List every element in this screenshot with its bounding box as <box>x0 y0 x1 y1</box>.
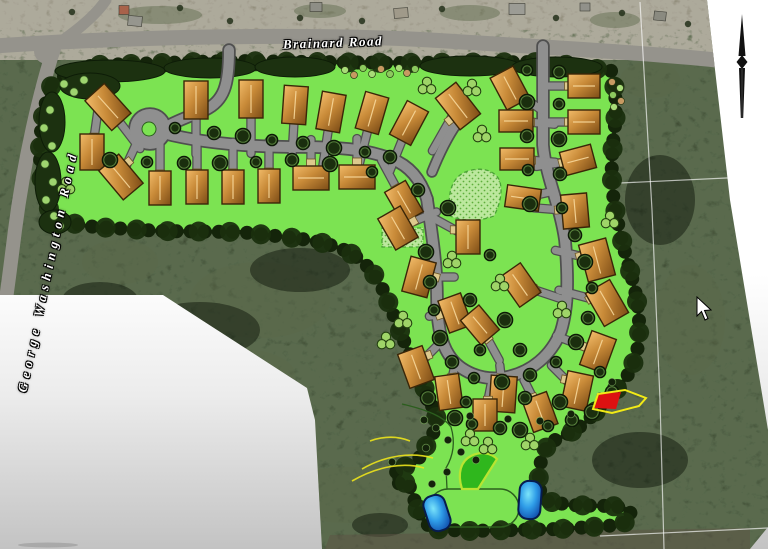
evergreen-tree <box>444 436 452 444</box>
house <box>565 74 601 98</box>
street-tree <box>497 312 513 328</box>
evergreen-tree <box>466 412 474 420</box>
house <box>282 85 309 125</box>
street-tree <box>447 410 463 426</box>
evergreen-tree <box>420 416 428 424</box>
house <box>435 373 463 411</box>
evergreen-tree <box>472 456 480 464</box>
evergreen-tree <box>443 468 451 476</box>
site-plan-viewer: Brainard Road George Washington Road <box>0 0 768 549</box>
street-tree <box>519 94 535 110</box>
shrub <box>351 72 358 79</box>
street-tree <box>577 254 593 270</box>
house <box>239 80 263 118</box>
house <box>80 133 104 170</box>
faint-watermark <box>18 543 78 548</box>
neighboring-building <box>119 6 129 15</box>
shrub-cluster <box>403 319 412 328</box>
shrub-cluster <box>473 133 482 142</box>
cul-de-sac-island <box>142 122 156 136</box>
shrub-cluster <box>452 259 461 268</box>
neighboring-building <box>128 15 143 26</box>
shrub <box>609 79 616 86</box>
shrub-cluster <box>418 85 427 94</box>
street-tree <box>522 196 538 212</box>
shrub <box>412 66 419 73</box>
shrub-cluster <box>491 282 500 291</box>
evergreen-tree <box>536 417 544 425</box>
neighboring-building <box>310 3 322 12</box>
evergreen-tree <box>388 458 396 466</box>
shrub-cluster <box>500 282 509 291</box>
street-tree <box>440 200 456 216</box>
shrub-cluster <box>482 133 491 142</box>
shrub-cluster <box>427 85 436 94</box>
shrub <box>610 92 617 99</box>
shrub-cluster <box>443 259 452 268</box>
house <box>149 170 171 205</box>
shrub-cluster <box>479 445 488 454</box>
street-tree <box>432 330 448 346</box>
shrub-cluster <box>57 185 66 194</box>
shrub-cluster <box>521 441 530 450</box>
shrub-cluster <box>66 185 75 194</box>
tree-canopy <box>164 58 256 78</box>
shrub <box>387 71 394 78</box>
street-tree <box>552 394 568 410</box>
shrub-cluster <box>386 340 395 349</box>
shrub-cluster <box>488 445 497 454</box>
evergreen-tree <box>608 378 616 386</box>
evergreen-tree <box>567 410 575 418</box>
evergreen-tree <box>428 480 436 488</box>
evergreen-tree <box>432 424 440 432</box>
street-tree <box>102 152 118 168</box>
shrub-cluster <box>394 319 403 328</box>
detention-pond <box>518 480 543 519</box>
shrub <box>617 85 624 92</box>
shrub-cluster <box>472 87 481 96</box>
shrub-cluster <box>461 437 470 446</box>
street-tree <box>322 156 338 172</box>
shrub <box>360 65 367 72</box>
street-tree <box>326 140 342 156</box>
house <box>186 169 208 204</box>
house <box>499 110 534 132</box>
neighboring-building <box>580 3 590 11</box>
street-tree <box>494 374 510 390</box>
street-tree <box>418 244 434 260</box>
shrub-cluster <box>610 219 619 228</box>
shrub <box>342 67 349 74</box>
street-tree <box>212 155 228 171</box>
shrub-cluster <box>530 441 539 450</box>
shrub <box>396 65 403 72</box>
shrub-cluster <box>377 340 386 349</box>
neighboring-building <box>394 8 409 19</box>
house <box>258 168 280 203</box>
evergreen-tree <box>504 415 512 423</box>
house <box>565 110 601 134</box>
street-tree <box>551 131 567 147</box>
house <box>222 169 244 204</box>
evergreen-tree <box>457 448 465 456</box>
shrub-cluster <box>463 87 472 96</box>
shrub <box>611 104 618 111</box>
shrub-cluster <box>553 309 562 318</box>
site-plan-map <box>0 0 768 549</box>
shrub <box>618 98 625 105</box>
street-tree <box>235 128 251 144</box>
house <box>184 81 208 119</box>
tree-canopy <box>255 57 335 77</box>
shrub <box>369 71 376 78</box>
shrub-cluster <box>470 437 479 446</box>
street-tree <box>420 390 436 406</box>
neighboring-building <box>509 4 525 15</box>
shrub <box>378 66 385 73</box>
street-tree <box>568 334 584 350</box>
north-arrow-icon <box>737 14 748 118</box>
neighboring-building <box>654 11 667 21</box>
evergreen-tree <box>422 444 430 452</box>
shrub <box>404 70 411 77</box>
shrub-cluster <box>562 309 571 318</box>
shrub-cluster <box>601 219 610 228</box>
